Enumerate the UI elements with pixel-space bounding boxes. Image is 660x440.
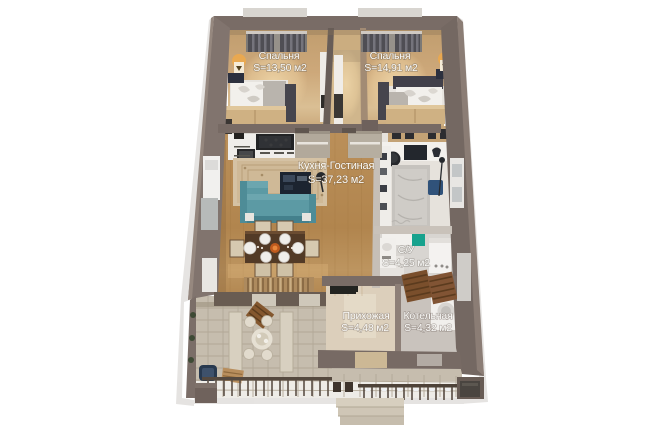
svg-text:S=37,23 м2: S=37,23 м2	[308, 174, 364, 186]
svg-text:S=4,32 м2: S=4,32 м2	[404, 322, 452, 334]
svg-text:Котельная: Котельная	[403, 310, 452, 322]
svg-text:С/У: С/У	[398, 244, 415, 256]
svg-text:Кухня-Гостиная: Кухня-Гостиная	[298, 160, 375, 172]
svg-text:S=13,50 м2: S=13,50 м2	[253, 62, 307, 74]
svg-text:Спальня: Спальня	[370, 50, 411, 62]
svg-text:S=4,48 м2: S=4,48 м2	[341, 322, 389, 334]
svg-text:S=4,25 м2: S=4,25 м2	[382, 257, 430, 269]
svg-text:Спальня: Спальня	[259, 50, 300, 62]
svg-text:Прихожая: Прихожая	[342, 310, 389, 322]
svg-text:S=14,91 м2: S=14,91 м2	[364, 62, 418, 74]
